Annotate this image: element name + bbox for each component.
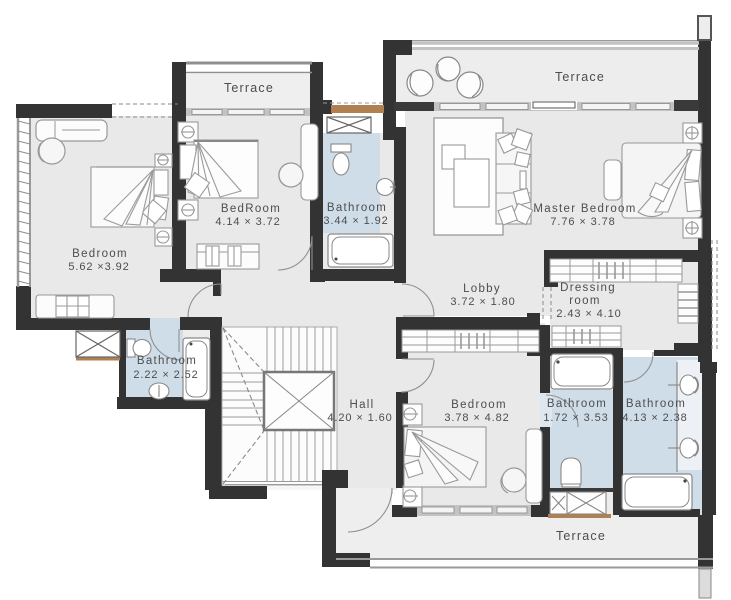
svg-text:room: room (569, 295, 600, 307)
svg-text:Bedroom: Bedroom (451, 399, 507, 411)
svg-text:3.72 × 1.80: 3.72 × 1.80 (450, 296, 515, 308)
svg-text:Bedroom: Bedroom (72, 248, 128, 260)
svg-text:Bathroom: Bathroom (547, 398, 607, 410)
svg-text:Bathroom: Bathroom (327, 202, 387, 214)
svg-text:BedRoom: BedRoom (221, 203, 281, 215)
svg-text:7.76 × 3.78: 7.76 × 3.78 (550, 216, 615, 228)
svg-text:Terrace: Terrace (556, 529, 606, 543)
svg-text:2.22 × 2.52: 2.22 × 2.52 (133, 369, 198, 381)
svg-text:4.13 × 2.38: 4.13 × 2.38 (622, 412, 687, 424)
svg-text:Master Bedroom: Master Bedroom (533, 203, 636, 215)
svg-text:Hall: Hall (349, 399, 374, 411)
svg-text:Lobby: Lobby (463, 283, 501, 295)
svg-text:Bathroom: Bathroom (626, 398, 686, 410)
svg-text:Dressing: Dressing (560, 282, 616, 294)
svg-text:1.72 × 3.53: 1.72 × 3.53 (543, 412, 608, 424)
svg-text:2.43 × 4.10: 2.43 × 4.10 (556, 308, 621, 320)
svg-text:3.78 × 4.82: 3.78 × 4.82 (444, 412, 509, 424)
svg-text:Terrace: Terrace (224, 81, 274, 95)
svg-text:5.62 ×3.92: 5.62 ×3.92 (68, 261, 129, 273)
svg-text:3.44 × 1.92: 3.44 × 1.92 (323, 215, 388, 227)
svg-text:4.20 × 1.60: 4.20 × 1.60 (327, 412, 392, 424)
svg-text:4.14 × 3.72: 4.14 × 3.72 (215, 216, 280, 228)
svg-text:Bathroom: Bathroom (137, 355, 197, 367)
svg-text:Terrace: Terrace (555, 70, 605, 84)
